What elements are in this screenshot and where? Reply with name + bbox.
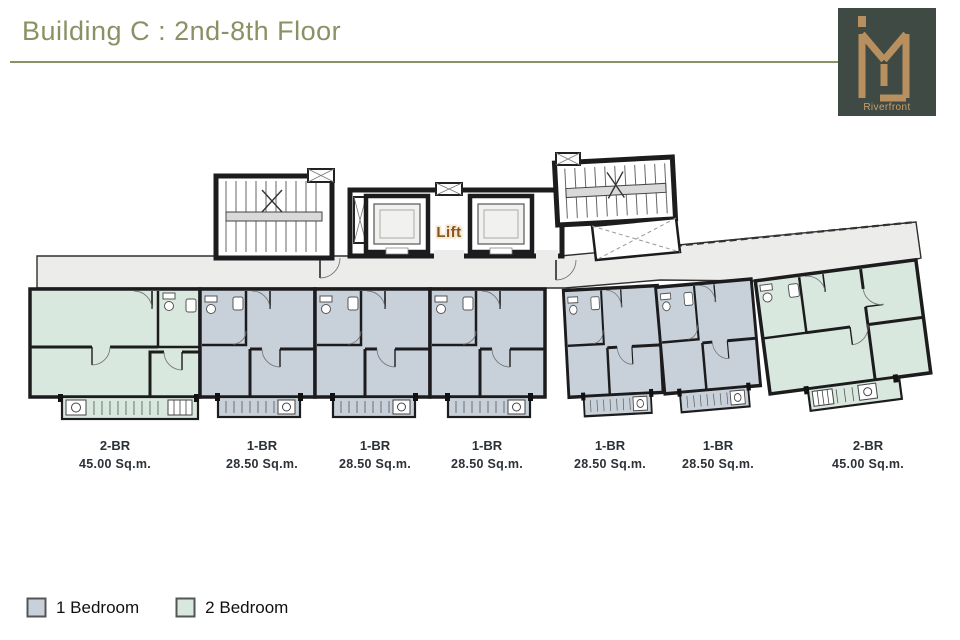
vent-shaft-icon bbox=[556, 153, 580, 165]
unit-1br-5 bbox=[656, 279, 763, 414]
vent-shaft-icon bbox=[436, 183, 462, 195]
unit-label: 1-BR 28.50 Sq.m. bbox=[339, 437, 411, 473]
legend-swatch-2br-icon bbox=[175, 597, 196, 618]
lift-shaft-b bbox=[470, 196, 532, 254]
legend-item-2br: 2 Bedroom bbox=[175, 597, 288, 618]
unit-label: 1-BR 28.50 Sq.m. bbox=[682, 437, 754, 473]
unit-1br-2 bbox=[315, 289, 430, 417]
legend: 1 Bedroom 2 Bedroom bbox=[26, 597, 288, 618]
unit-2br-right bbox=[755, 260, 933, 416]
unit-1br-3 bbox=[430, 289, 545, 417]
lift-shaft-a bbox=[366, 196, 428, 254]
unit-label: 1-BR 28.50 Sq.m. bbox=[451, 437, 523, 473]
floor-plan: Lift bbox=[0, 0, 960, 640]
legend-label-1br: 1 Bedroom bbox=[56, 598, 139, 618]
stair-core-right bbox=[554, 157, 675, 225]
legend-swatch-1br-icon bbox=[26, 597, 47, 618]
lift-label: Lift bbox=[436, 224, 461, 241]
unit-label: 2-BR 45.00 Sq.m. bbox=[832, 437, 904, 473]
unit-label: 1-BR 28.50 Sq.m. bbox=[226, 437, 298, 473]
hatched-void bbox=[592, 218, 680, 260]
unit-1br-4 bbox=[563, 286, 664, 417]
unit-2br-left bbox=[30, 289, 200, 419]
page: Building C : 2nd-8th Floor Riverfront bbox=[0, 0, 960, 640]
unit-label: 2-BR 45.00 Sq.m. bbox=[79, 437, 151, 473]
legend-label-2br: 2 Bedroom bbox=[205, 598, 288, 618]
unit-1br-1 bbox=[200, 289, 315, 417]
unit-label: 1-BR 28.50 Sq.m. bbox=[574, 437, 646, 473]
legend-item-1br: 1 Bedroom bbox=[26, 597, 139, 618]
vent-shaft-icon bbox=[308, 169, 334, 182]
